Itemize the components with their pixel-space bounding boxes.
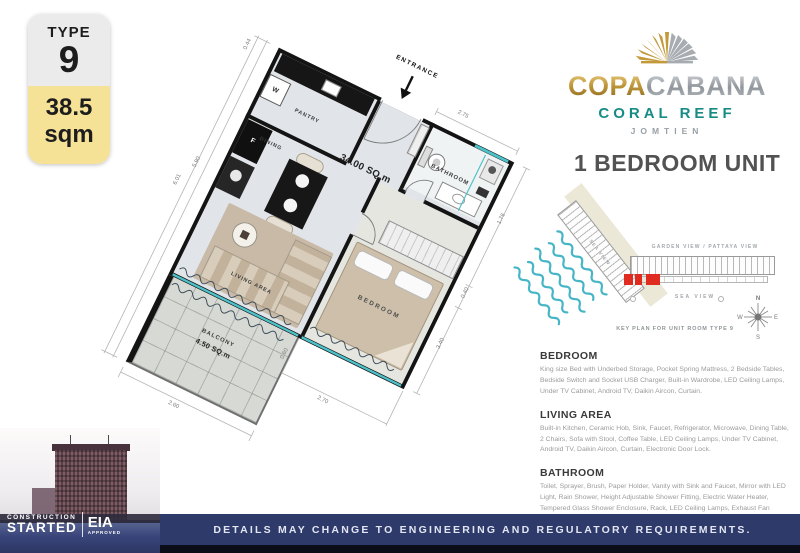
divider [82,512,83,537]
brand-name-silver: CABANA [646,71,766,101]
section-bedroom-body: King size Bed with Underbed Storage, Poc… [540,365,792,398]
construction-line2: STARTED [7,521,77,535]
eia-label: EIA [88,515,121,530]
type-badge-top: TYPE 9 [28,14,110,86]
sun-icon [634,26,700,66]
keyplan-sea-label: SEA VIEW [640,294,750,300]
eia-badge: EIA APPROVED [88,515,121,535]
type-number: 9 [28,41,110,78]
area-value: 38.5 [28,94,110,122]
floor-plan: W PANTRY F DINING 34.00 SQ.m LIVING AREA… [126,48,514,477]
svg-text:N: N [756,296,760,302]
brand-location: JOMTIEN [553,126,781,136]
window-glass-lines [173,51,510,386]
section-bathroom-body: Toilet, Sprayer, Brush, Paper Holder, Va… [540,482,792,515]
tower-antenna [108,435,109,444]
section-living-body: Built-in Kitchen, Ceramic Hob, Sink, Fau… [540,424,792,457]
brand-series: CORAL REEF [553,105,781,122]
brand-logo: COPACABANA CORAL REEF JOMTIEN [553,26,781,136]
keyplan-garden-label: GARDEN VIEW / PATTAYA VIEW [632,244,778,250]
keyplan-caption: KEY PLAN FOR UNIT ROOM TYPE 9 [595,326,755,332]
highlighted-unit [624,274,633,285]
section-bathroom-title: BATHROOM [540,467,792,479]
footer-disclaimer-text: DETAILS MAY CHANGE TO ENGINEERING AND RE… [175,524,790,536]
section-bedroom-title: BEDROOM [540,350,792,362]
construction-status-lines: CONSTRUCTION STARTED [7,514,77,535]
brochure-page: TYPE 9 38.5 sqm W PANTRY F [0,0,800,553]
highlighted-unit [646,274,660,285]
svg-text:W: W [737,315,743,321]
compass-icon: N E S W [735,292,781,342]
area-unit: sqm [28,122,110,147]
unit-title: 1 BEDROOM UNIT [574,150,780,177]
construction-status: CONSTRUCTION STARTED EIA APPROVED [7,512,121,537]
eia-sub-label: APPROVED [88,530,121,535]
brand-name: COPACABANA [553,73,781,100]
area-badge: 38.5 sqm [28,86,110,164]
spec-sections: BEDROOM King size Bed with Underbed Stor… [540,346,792,515]
entrance-arrow-icon [396,74,418,102]
svg-text:E: E [774,315,778,321]
brand-name-gold: COPA [568,71,646,101]
tower-antenna [70,435,71,444]
key-plan: GARDEN VIEW / PATTAYA VIEW SEA VIEW SEA … [540,198,795,346]
construction-photo: CONSTRUCTION STARTED EIA APPROVED [0,428,160,553]
keyplan-marker [630,296,636,302]
svg-text:S: S [756,335,760,341]
building-wing-horizontal [630,256,775,275]
door-arcs [324,100,456,256]
highlighted-unit [635,274,642,285]
type-badge: TYPE 9 38.5 sqm [28,14,110,164]
section-living-title: LIVING AREA [540,409,792,421]
